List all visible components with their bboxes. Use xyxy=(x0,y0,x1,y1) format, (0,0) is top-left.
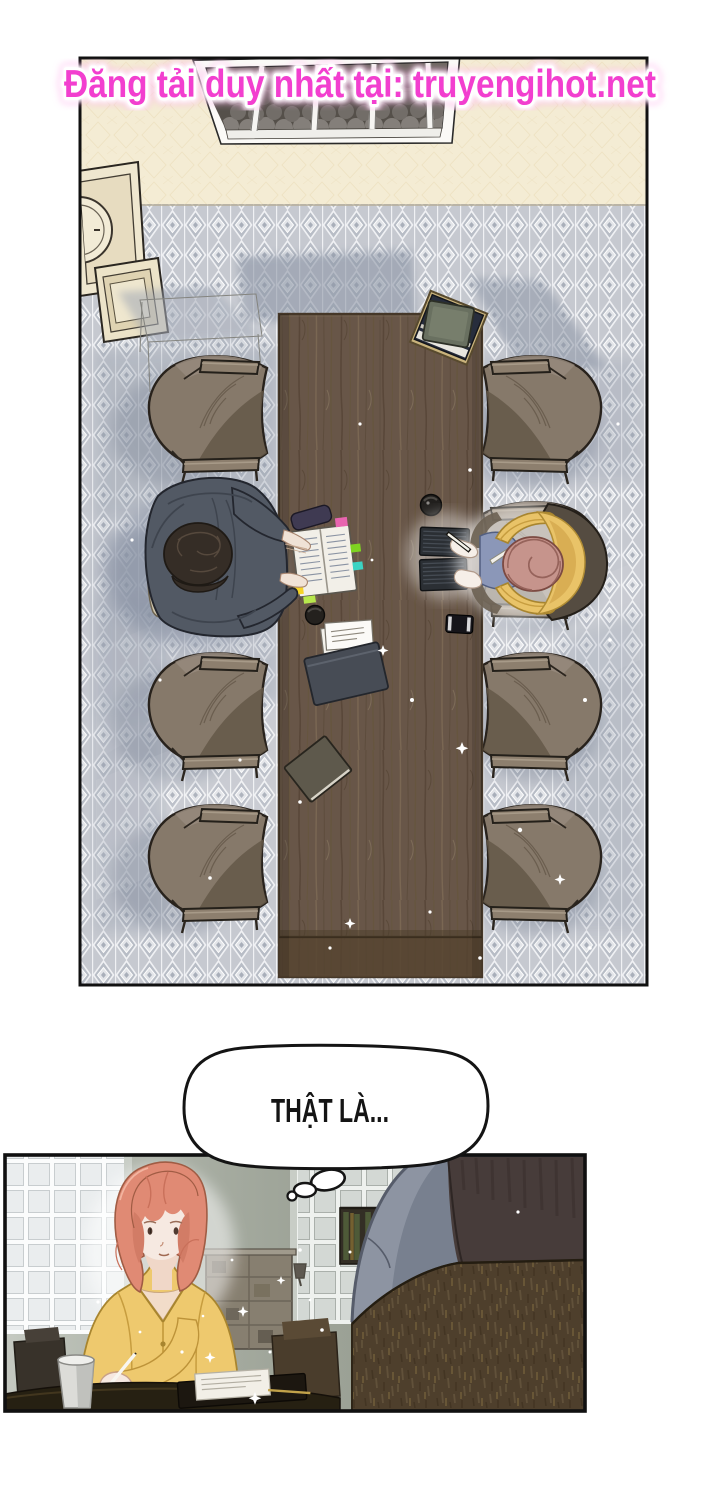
svg-text:Đăng tải duy nhất tại: truyeng: Đăng tải duy nhất tại: truyengihot.net xyxy=(64,63,656,106)
svg-text:THẬT LÀ...: THẬT LÀ... xyxy=(271,1092,389,1129)
